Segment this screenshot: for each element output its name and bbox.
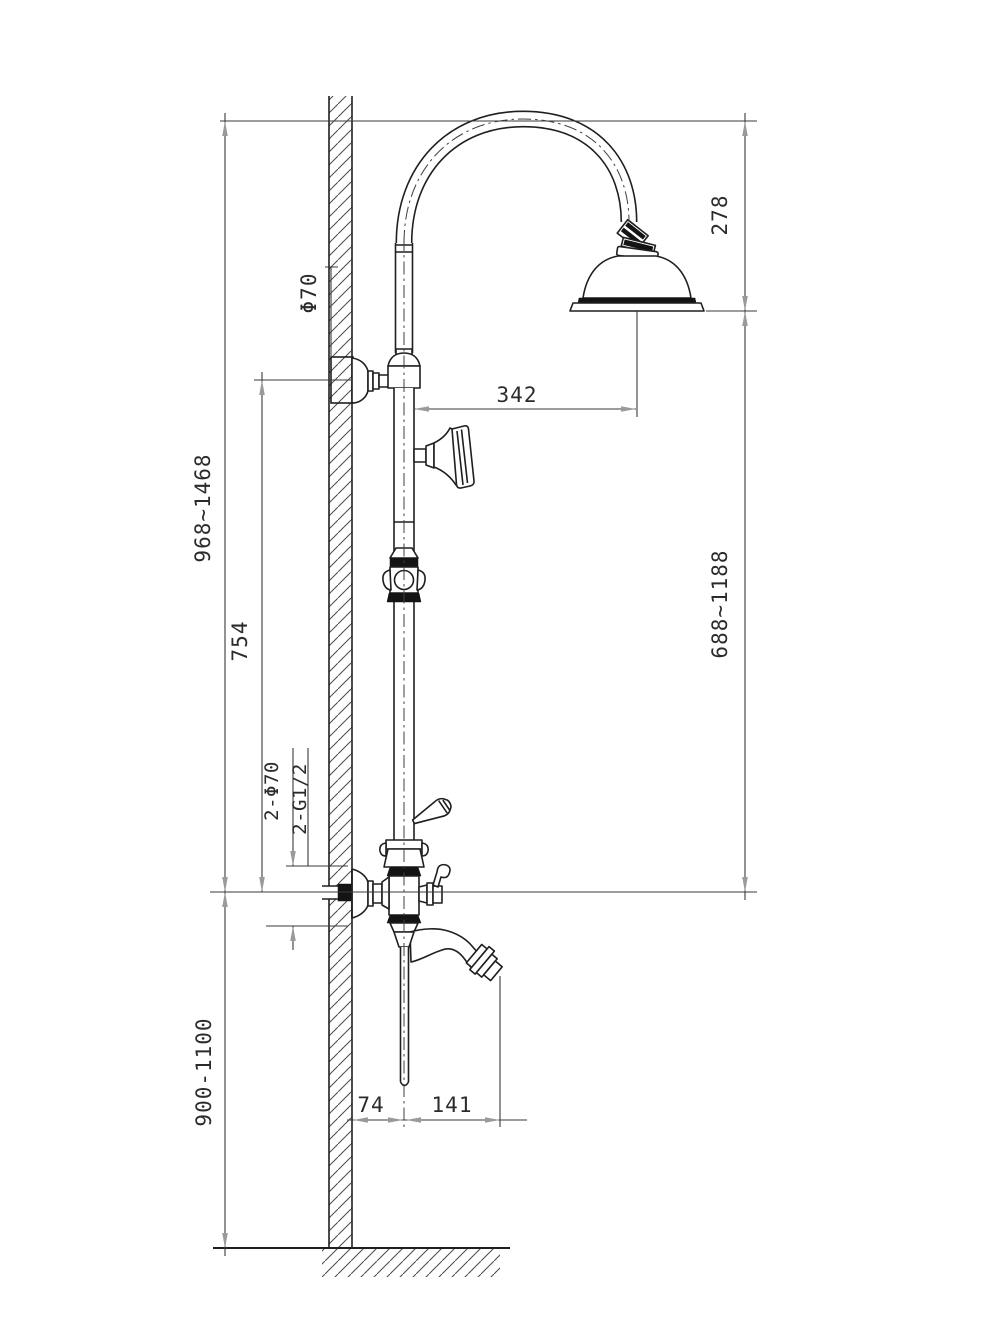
mixer-side-port xyxy=(433,886,442,903)
wall-section xyxy=(329,96,352,1248)
dim-label-phi70: Φ70 xyxy=(297,273,321,314)
dim-label-74: 74 xyxy=(357,1093,384,1117)
floor-hatch xyxy=(322,1248,500,1277)
dimension-labels: 968~1468 754 900-1100 Φ70 2-Φ70 2-G1/2 3… xyxy=(191,195,732,1127)
bracket-escutcheon xyxy=(352,358,368,403)
technical-drawing-page: 968~1468 754 900-1100 Φ70 2-Φ70 2-G1/2 3… xyxy=(0,0,1000,1340)
shower-column-technical-drawing: 968~1468 754 900-1100 Φ70 2-Φ70 2-G1/2 3… xyxy=(0,0,1000,1340)
wall-hatch xyxy=(329,96,352,1248)
dim-label-2g12: 2-G1/2 xyxy=(289,763,311,835)
dim-label-total-height: 968~1468 xyxy=(191,453,215,562)
dim-label-mount-height: 900-1100 xyxy=(192,1017,216,1126)
head-dome xyxy=(583,256,691,298)
hand-shower xyxy=(414,426,474,488)
dim-label-754: 754 xyxy=(228,621,252,662)
dim-label-278: 278 xyxy=(708,195,732,236)
dim-label-2phi70: 2-Φ70 xyxy=(261,761,283,821)
rain-shower-head xyxy=(570,220,704,311)
diverter-lever xyxy=(410,795,455,829)
dim-label-141: 141 xyxy=(432,1093,473,1117)
floor-section xyxy=(213,1248,510,1277)
inlet-escutcheon xyxy=(352,869,368,918)
mixer-handle xyxy=(433,865,450,887)
mixer-valve xyxy=(380,840,450,932)
dim-label-342: 342 xyxy=(497,383,538,407)
tub-spout xyxy=(410,929,507,985)
hand-shower-holder xyxy=(414,449,426,462)
gooseneck-arm xyxy=(404,119,629,243)
dim-label-column-span: 688~1188 xyxy=(708,549,732,658)
head-rim xyxy=(570,303,704,311)
